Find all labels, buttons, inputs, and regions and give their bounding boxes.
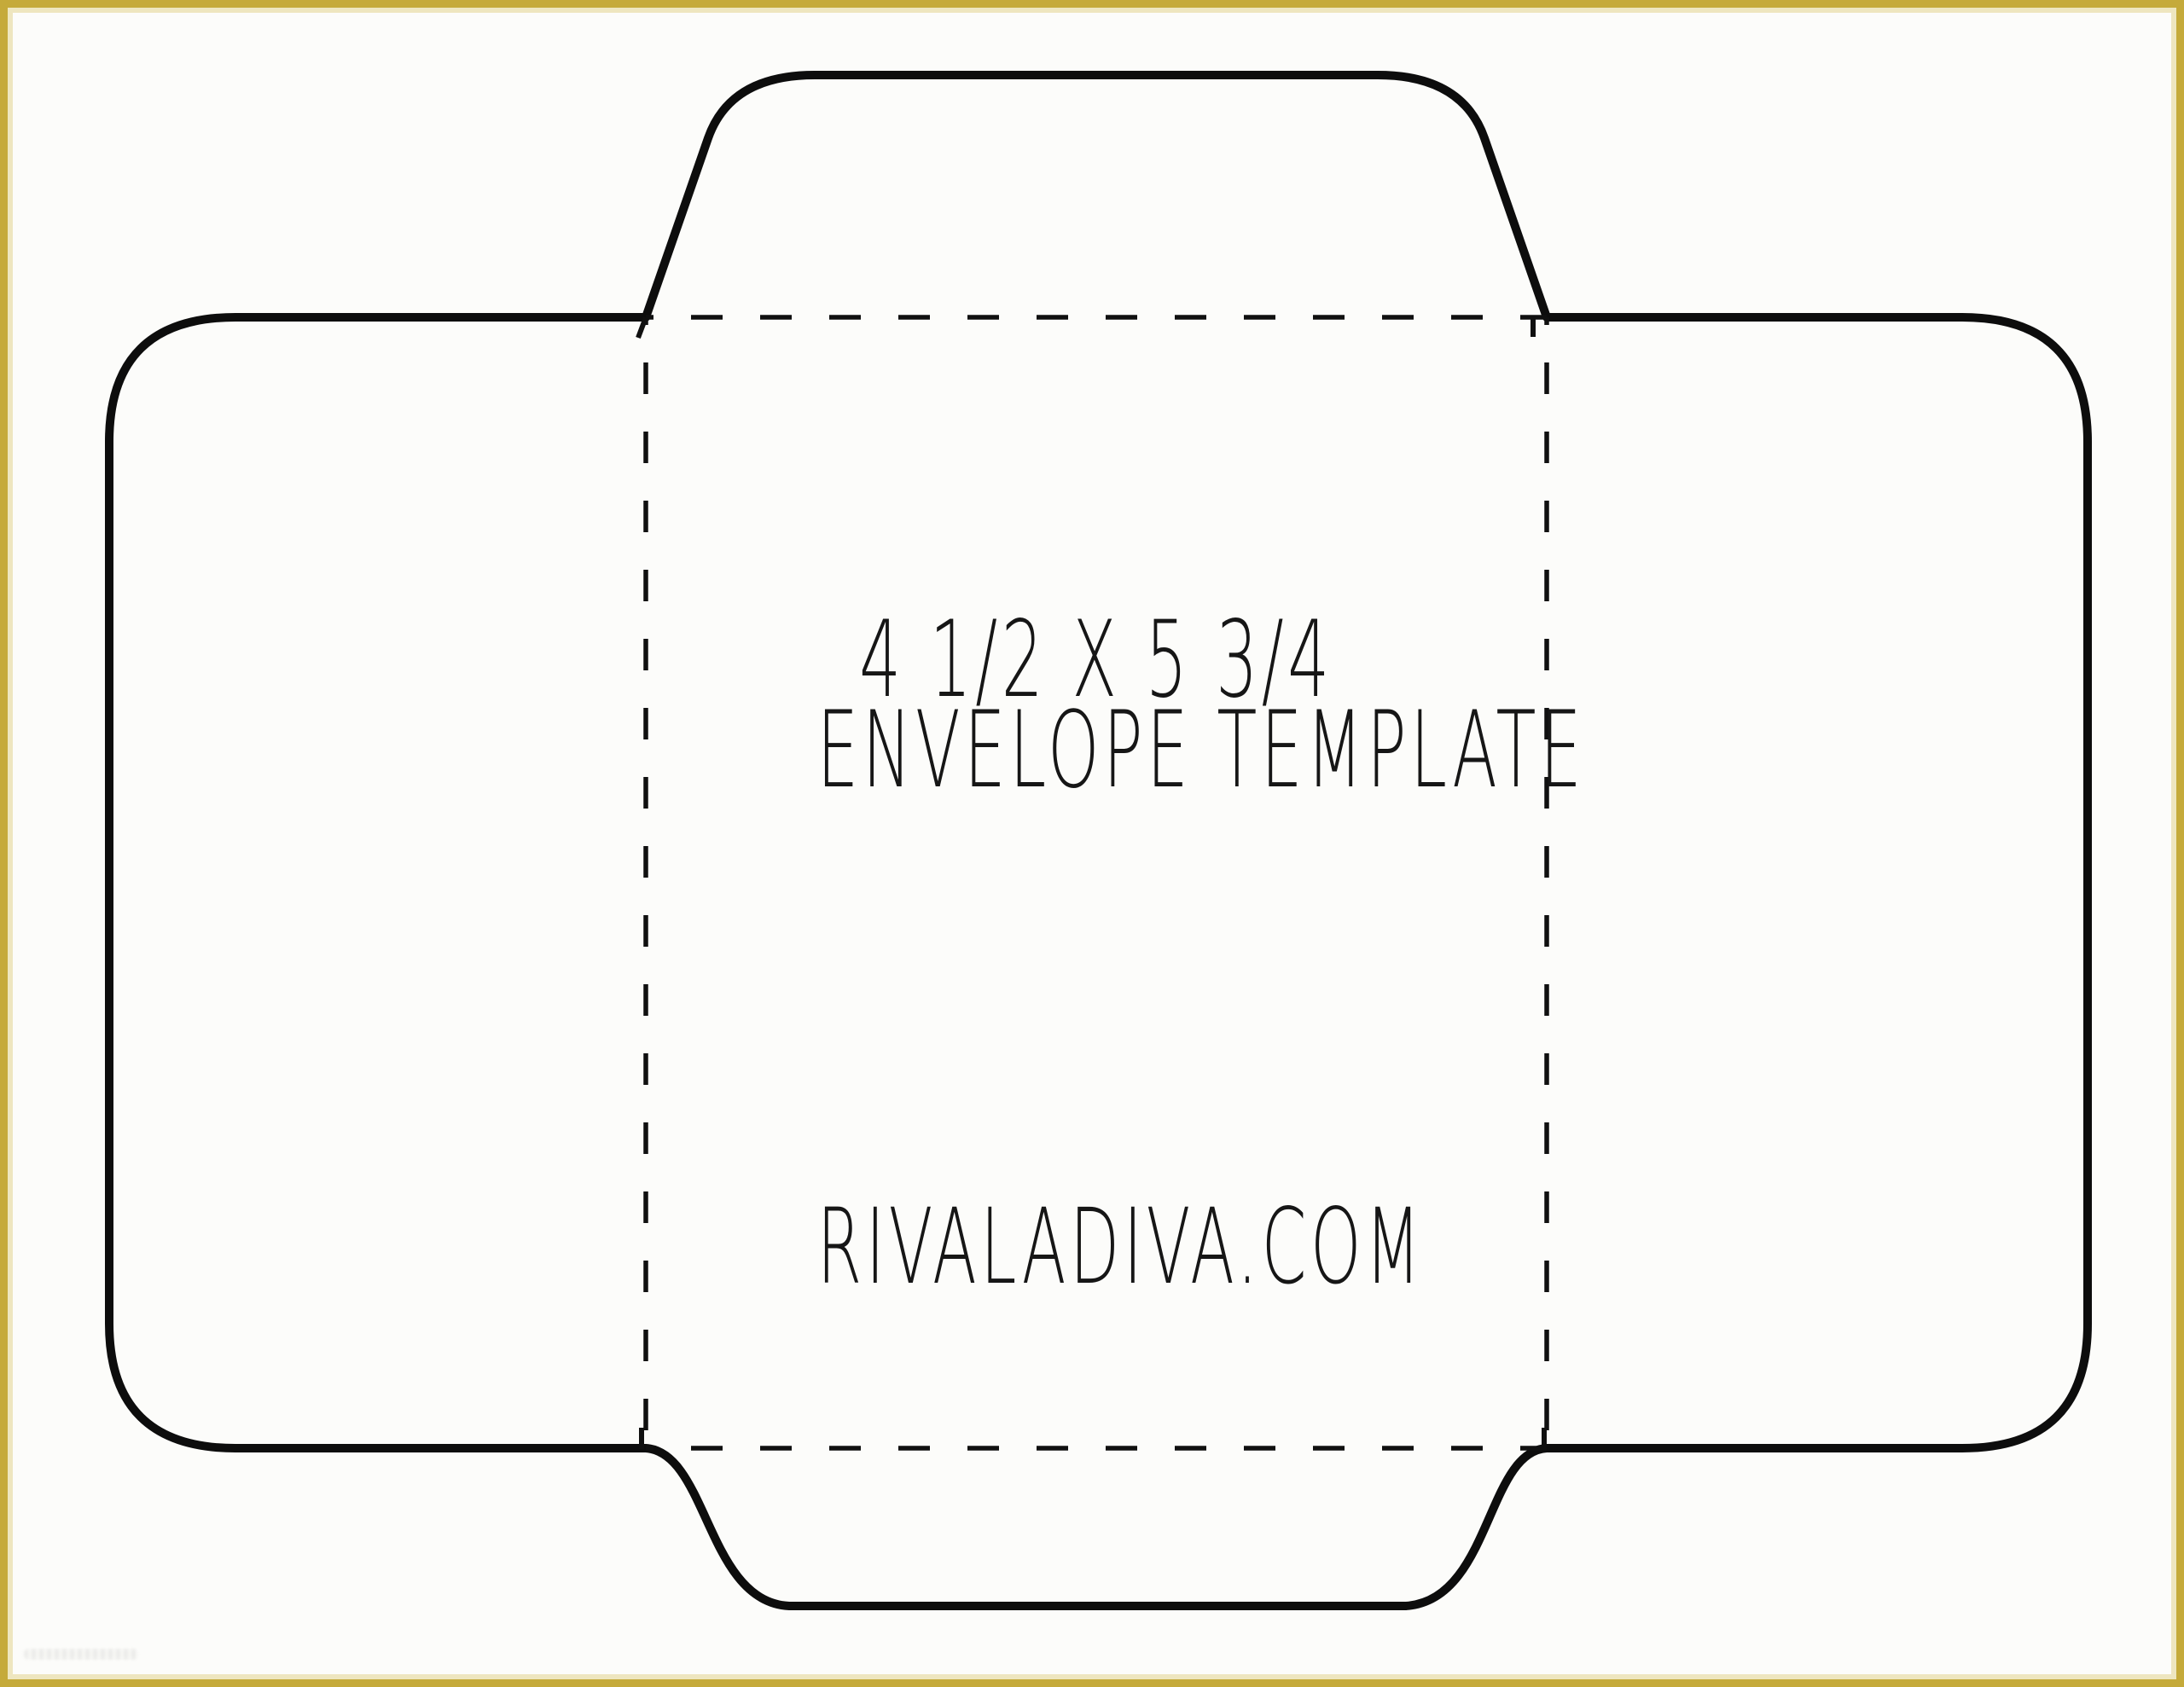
watermark-smudge: [24, 1649, 138, 1660]
website-label: RIVALADIVA.COM: [817, 1195, 1376, 1299]
envelope-type-label: ENVELOPE TEMPLATE: [817, 698, 1376, 803]
envelope-template-page: 4 1/2 X 5 3/4 ENVELOPE TEMPLATE RIVALADI…: [0, 0, 2184, 1687]
envelope-outline: [109, 75, 2088, 1606]
envelope-diagram: [0, 0, 2184, 1687]
